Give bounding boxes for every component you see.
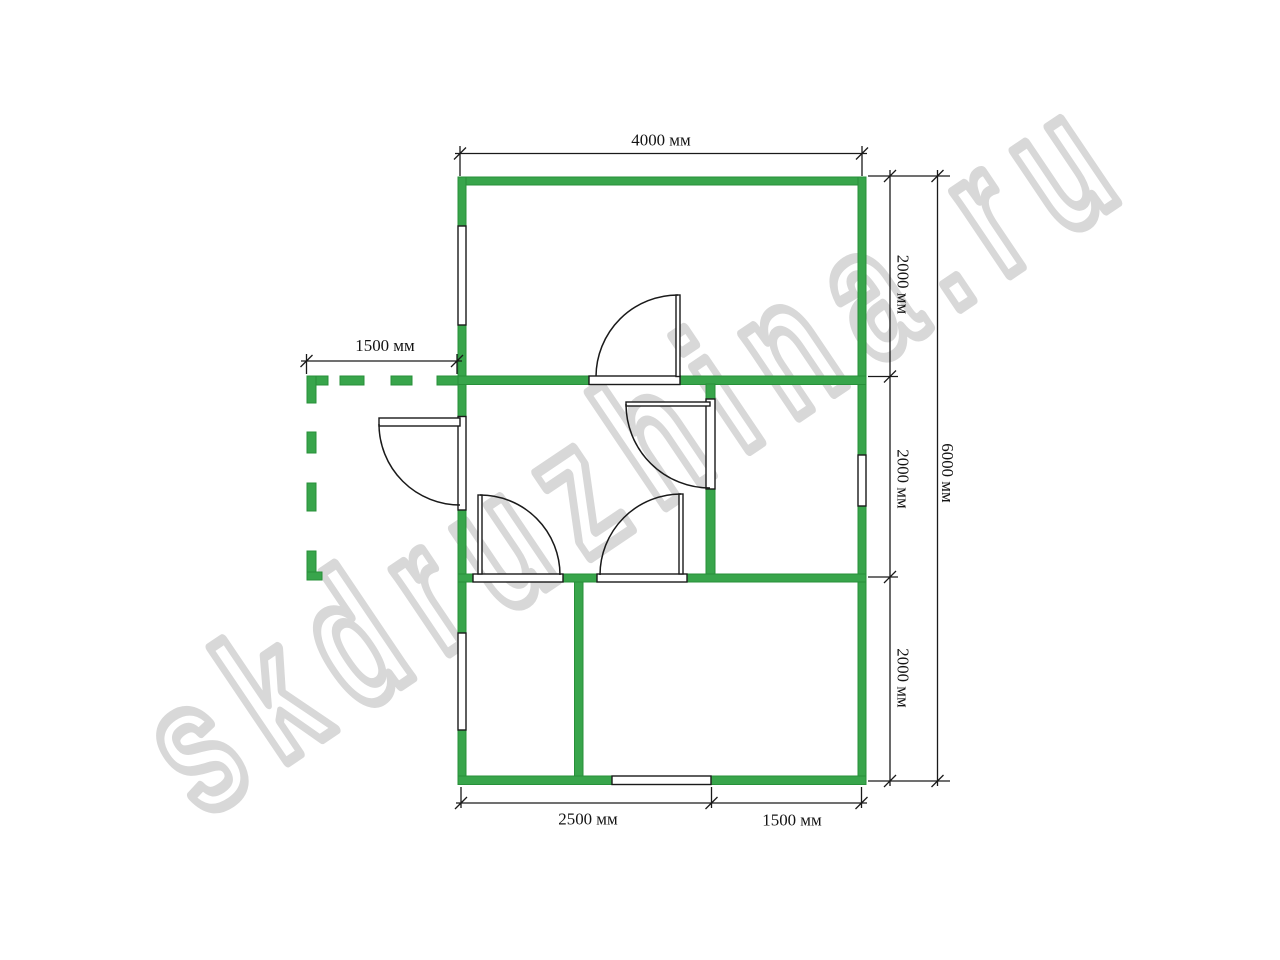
svg-text:2500 мм: 2500 мм bbox=[558, 810, 618, 829]
svg-text:1500 мм: 1500 мм bbox=[762, 811, 822, 830]
svg-text:2000 мм: 2000 мм bbox=[894, 449, 913, 509]
svg-text:4000 мм: 4000 мм bbox=[631, 131, 691, 150]
svg-text:2000 мм: 2000 мм bbox=[894, 255, 913, 315]
svg-text:6000 мм: 6000 мм bbox=[938, 443, 957, 503]
svg-text:1500 мм: 1500 мм bbox=[355, 336, 415, 355]
svg-text:2000 мм: 2000 мм bbox=[894, 648, 913, 708]
